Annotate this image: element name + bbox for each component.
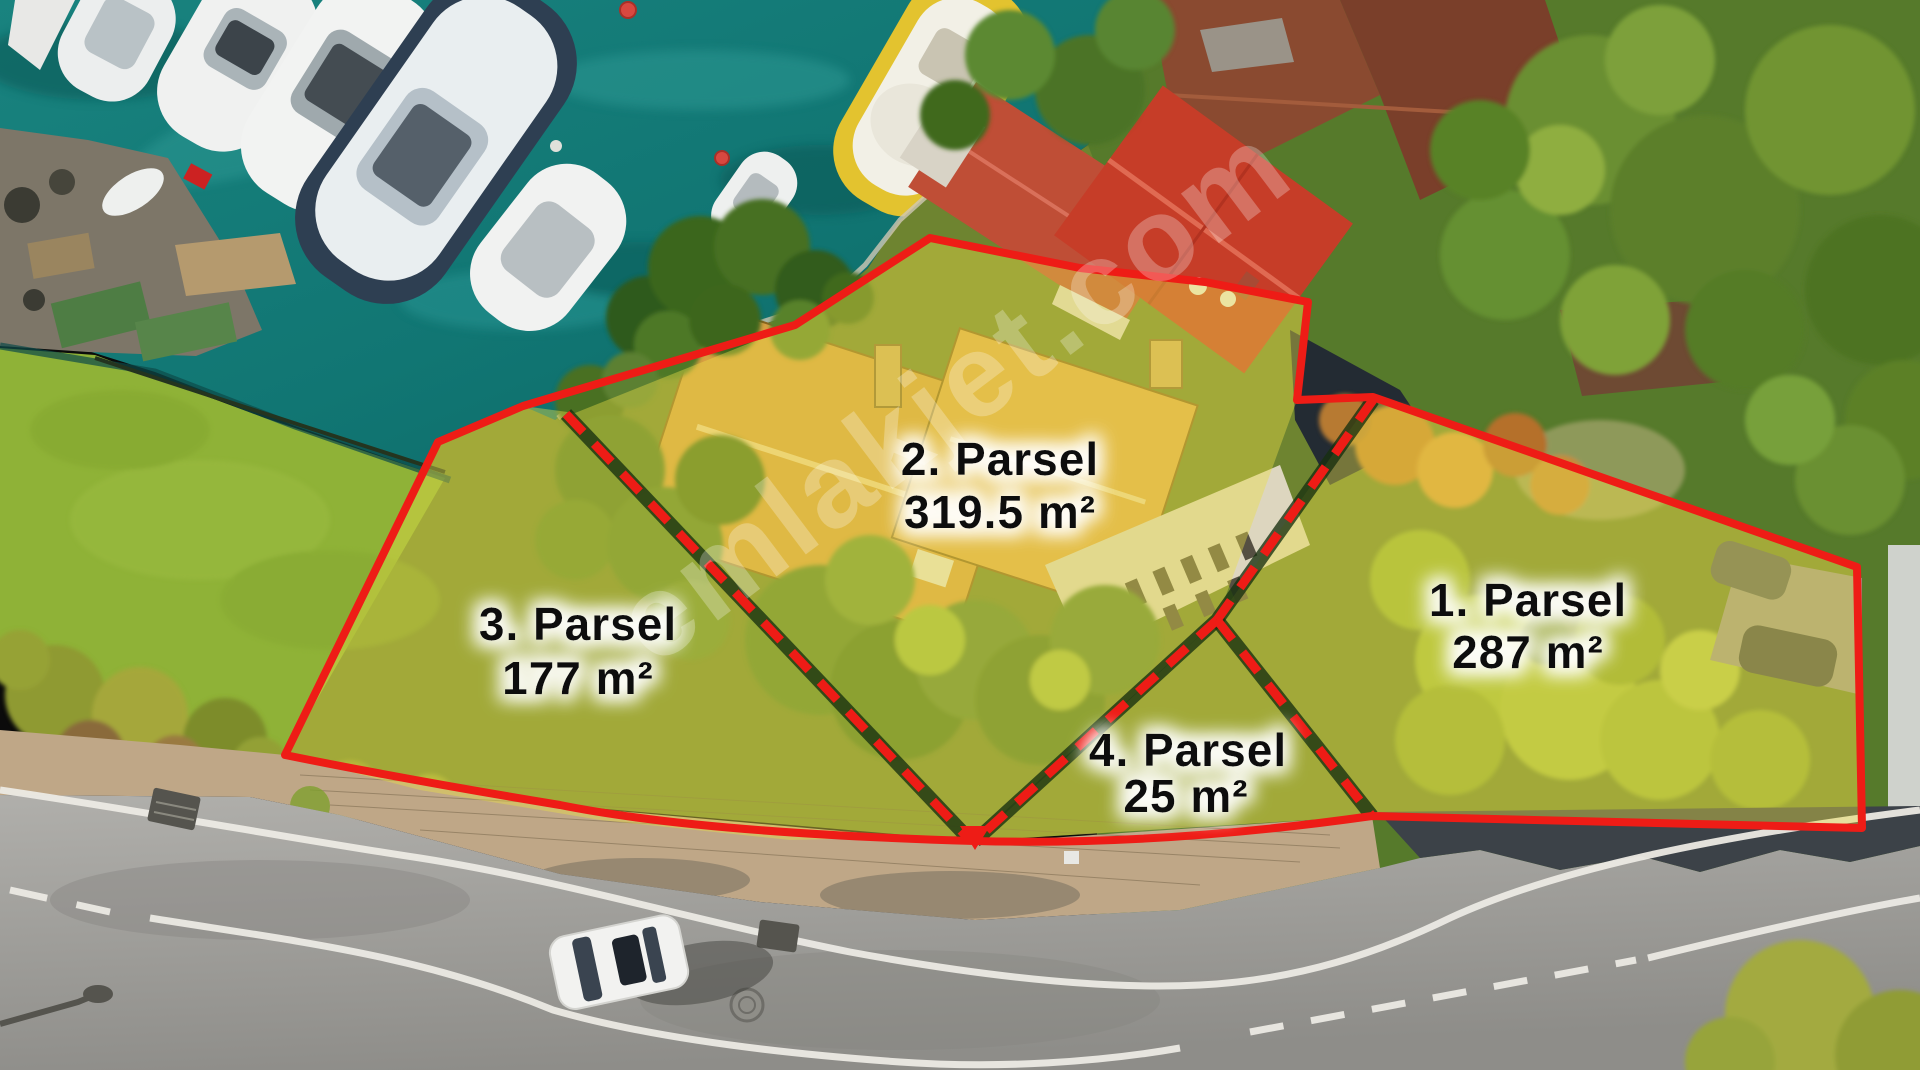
parcel-1-area-label: 287 m² (1452, 626, 1604, 678)
parcel-3-name-label: 3. Parsel (479, 598, 677, 650)
aerial-parcel-photo: emlakjet.com 2. Parsel 319.5 m² 3. Parse… (0, 0, 1920, 1070)
parcel-4-area-label: 25 m² (1123, 770, 1248, 822)
parcel-1-label: 1. Parsel 287 m² (1429, 574, 1627, 678)
utility-box (1064, 851, 1079, 864)
parcel-3-area-label: 177 m² (502, 652, 654, 704)
parcel-2-area-label: 319.5 m² (904, 486, 1096, 538)
parcel-1-name-label: 1. Parsel (1429, 574, 1627, 626)
parcel-2-name-label: 2. Parsel (901, 433, 1099, 485)
side-path (1888, 545, 1920, 835)
parcel-2-label: 2. Parsel 319.5 m² (901, 433, 1099, 538)
parcel-4-name-label: 4. Parsel (1089, 724, 1287, 776)
